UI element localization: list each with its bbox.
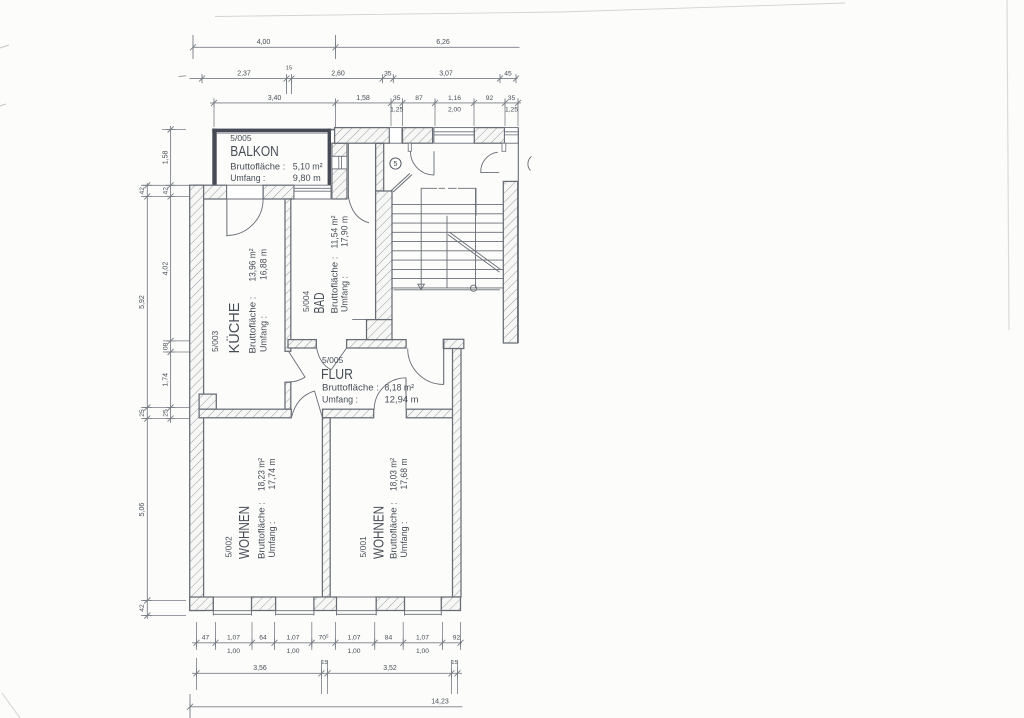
svg-text:5/002: 5/002 bbox=[224, 536, 234, 558]
svg-text:1,07: 1,07 bbox=[347, 635, 360, 642]
svg-text:12,94 m: 12,94 m bbox=[385, 394, 419, 405]
svg-text:5,10 m²: 5,10 m² bbox=[293, 162, 323, 173]
svg-text:1,00: 1,00 bbox=[227, 648, 240, 655]
svg-text:1,25: 1,25 bbox=[505, 107, 518, 114]
svg-text:4,00: 4,00 bbox=[257, 39, 271, 46]
svg-text:25: 25 bbox=[139, 409, 146, 417]
svg-text:15: 15 bbox=[286, 66, 292, 72]
svg-text:2,00: 2,00 bbox=[448, 107, 461, 114]
svg-text:35: 35 bbox=[508, 95, 516, 102]
svg-text:5/005: 5/005 bbox=[322, 355, 344, 365]
svg-text:1,00: 1,00 bbox=[416, 648, 429, 655]
svg-text:Umfang :: Umfang : bbox=[230, 173, 265, 184]
svg-text:Bruttofläche :18,03 m²: Bruttofläche :18,03 m² bbox=[389, 458, 400, 559]
svg-text:45: 45 bbox=[504, 70, 512, 77]
svg-text:BAD: BAD bbox=[312, 293, 328, 314]
svg-text:84: 84 bbox=[385, 635, 393, 642]
svg-text:3,52: 3,52 bbox=[383, 665, 397, 672]
svg-text:5/003: 5/003 bbox=[210, 330, 220, 352]
svg-text:2,60: 2,60 bbox=[331, 70, 345, 77]
svg-text:5,92: 5,92 bbox=[139, 295, 146, 309]
svg-text:42: 42 bbox=[162, 187, 169, 195]
svg-text:25: 25 bbox=[162, 409, 169, 417]
svg-text:3,40: 3,40 bbox=[268, 95, 282, 102]
svg-text:92: 92 bbox=[453, 635, 461, 642]
svg-text:2,37: 2,37 bbox=[237, 70, 251, 77]
svg-text:42: 42 bbox=[139, 604, 146, 612]
svg-text:5/001: 5/001 bbox=[358, 536, 368, 558]
svg-text:92: 92 bbox=[486, 95, 494, 102]
svg-text:1,16: 1,16 bbox=[448, 95, 461, 102]
svg-text:1,07: 1,07 bbox=[227, 635, 240, 642]
svg-text:1,00: 1,00 bbox=[286, 648, 299, 655]
svg-text:4,02: 4,02 bbox=[162, 262, 169, 276]
svg-text:15: 15 bbox=[321, 660, 327, 666]
svg-text:6,26: 6,26 bbox=[436, 39, 450, 46]
svg-text:Bruttofläche :: Bruttofläche : bbox=[322, 383, 379, 394]
svg-text:35: 35 bbox=[393, 95, 401, 102]
svg-text:47: 47 bbox=[202, 635, 210, 642]
svg-text:35: 35 bbox=[384, 70, 392, 77]
svg-text:BALKON: BALKON bbox=[230, 144, 278, 160]
svg-text:87: 87 bbox=[415, 95, 423, 102]
svg-text:1,58: 1,58 bbox=[162, 150, 169, 164]
svg-text:5,06: 5,06 bbox=[139, 503, 146, 517]
svg-text:5/005: 5/005 bbox=[230, 133, 252, 143]
svg-text:Bruttofläche :18,23 m²: Bruttofläche :18,23 m² bbox=[257, 458, 268, 559]
svg-text:1,07: 1,07 bbox=[416, 635, 429, 642]
svg-text:3,07: 3,07 bbox=[439, 70, 453, 77]
svg-text:15: 15 bbox=[451, 660, 457, 666]
svg-text:Umfang :: Umfang : bbox=[322, 394, 358, 405]
svg-text:5: 5 bbox=[394, 161, 398, 168]
svg-text:14,23: 14,23 bbox=[431, 699, 449, 706]
svg-text:FLUR: FLUR bbox=[321, 367, 353, 383]
svg-text:64: 64 bbox=[259, 635, 267, 642]
svg-text:WOHNEN: WOHNEN bbox=[237, 506, 253, 559]
svg-text:Bruttofläche :: Bruttofläche : bbox=[230, 162, 285, 173]
svg-text:08: 08 bbox=[162, 342, 169, 350]
svg-text:9,80 m: 9,80 m bbox=[293, 173, 321, 184]
svg-text:42: 42 bbox=[139, 187, 146, 195]
svg-text:5/004: 5/004 bbox=[301, 290, 311, 312]
svg-text:1,00: 1,00 bbox=[347, 648, 360, 655]
svg-text:1,25: 1,25 bbox=[390, 107, 403, 114]
svg-text:3,56: 3,56 bbox=[253, 665, 267, 672]
svg-text:1,07: 1,07 bbox=[286, 635, 299, 642]
svg-text:1,58: 1,58 bbox=[356, 95, 370, 102]
svg-text:Bruttofläche :13,96 m²: Bruttofläche :13,96 m² bbox=[248, 249, 259, 354]
svg-text:1,74: 1,74 bbox=[162, 373, 169, 387]
svg-text:WOHNEN: WOHNEN bbox=[372, 506, 388, 559]
svg-text:8,18 m²: 8,18 m² bbox=[385, 383, 415, 394]
svg-text:KÜCHE: KÜCHE bbox=[225, 302, 243, 353]
